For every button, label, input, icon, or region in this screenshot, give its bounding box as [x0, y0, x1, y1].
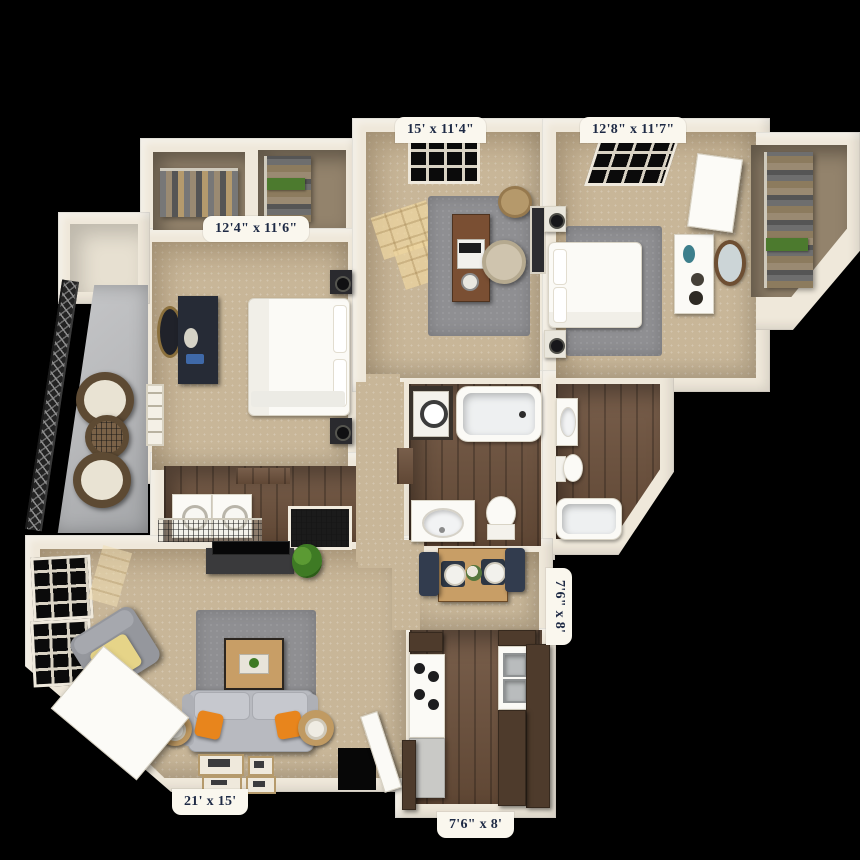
- office-door-opening: [366, 374, 400, 388]
- office-side-table: [498, 186, 532, 218]
- sofa: [182, 688, 318, 754]
- dinner-plate: [484, 562, 506, 584]
- dimension-label-office: 15' x 11'4": [395, 117, 486, 143]
- living-window-1: [30, 554, 93, 621]
- closet-b-green-garment: [267, 178, 305, 190]
- tub-drain: [519, 411, 526, 418]
- bathroom-left-vanity: [411, 500, 475, 542]
- walkin-closet-green-garment: [766, 238, 808, 251]
- dresser-vase-dark: [689, 291, 703, 305]
- stove-burner: [414, 689, 425, 700]
- sink-basin: [503, 679, 527, 703]
- table-lamp: [549, 213, 565, 229]
- bathroom-left-door-opening: [397, 448, 413, 484]
- table-lamp: [335, 276, 351, 292]
- lamp-shade: [305, 718, 327, 740]
- dimension-label-kitchen: 7'6" x 8': [437, 812, 514, 838]
- picture-frame: [246, 776, 276, 794]
- floor-lamp-right: [298, 710, 334, 746]
- laundry-nook: [409, 386, 453, 440]
- sink-basin: [560, 407, 576, 437]
- bedroom-right-bed: [548, 242, 642, 328]
- storage-room-floor: [70, 224, 138, 292]
- coffee-table: [224, 638, 284, 690]
- desk-clock: [461, 273, 479, 291]
- dining-table: [438, 548, 508, 602]
- potted-plant: [292, 544, 322, 578]
- sink-basin: [422, 508, 464, 538]
- bed-pillow: [553, 249, 567, 285]
- coffee-table-plant: [249, 658, 259, 668]
- washer-door: [420, 400, 448, 428]
- bed-pillow: [333, 305, 347, 353]
- stove-burner: [414, 663, 425, 674]
- tv-screen: [212, 541, 290, 555]
- bathroom-right-vanity: [556, 398, 578, 446]
- kitchen-base-cabinet-left: [402, 740, 416, 810]
- passage-dining-left: [392, 560, 420, 630]
- sink-faucet: [439, 527, 445, 533]
- walkin-closet-hanging-clothes: [764, 152, 813, 288]
- stove-burner: [428, 699, 439, 710]
- kitchen-tall-cabinet-right: [526, 644, 550, 808]
- wire-shelf: [158, 518, 262, 542]
- dimension-label-bedroom-right: 12'8" x 11'7": [580, 117, 686, 143]
- bed-pillow: [553, 287, 567, 323]
- dimension-label-bedroom-left: 12'4" x 11'6": [203, 216, 309, 242]
- balcony-chair-2: [73, 452, 131, 508]
- laptop-screen: [459, 243, 481, 253]
- bathtub-right: [556, 498, 622, 540]
- bedroom-left-dresser: [178, 296, 218, 384]
- throw-pillow-left: [194, 710, 225, 741]
- floor-plan-3d: 15' x 11'4" 12'8" x 11'7" 12'4" x 11'6" …: [0, 0, 860, 860]
- bedroom-left-window: [146, 384, 164, 446]
- toilet-bowl: [563, 454, 583, 482]
- toilet-tank: [487, 524, 515, 540]
- dining-chair-right: [505, 548, 525, 592]
- office-chair: [482, 240, 526, 284]
- dresser-vase-teal: [683, 245, 695, 263]
- dining-chair-left: [419, 552, 439, 596]
- kitchen-upper-cabinet-left: [409, 632, 443, 652]
- closet-a-hanging-clothes: [160, 168, 238, 217]
- centerpiece: [466, 565, 482, 581]
- side-doorway: [338, 748, 376, 790]
- table-lamp: [549, 338, 565, 354]
- bedroom-right-nightstand-top: [544, 206, 566, 232]
- dimension-label-living: 21' x 15': [172, 789, 248, 815]
- bedroom-right-dresser: [674, 234, 714, 314]
- picture-frame: [248, 756, 274, 776]
- bedroom-right-nightstand-bottom: [544, 330, 566, 358]
- stove-burner: [428, 671, 439, 682]
- dresser-decor: [184, 328, 198, 348]
- bathtub-left: [456, 386, 542, 442]
- bedroom-left-nightstand-top: [330, 270, 352, 294]
- dresser-vase-dark: [691, 273, 704, 286]
- picture-frame: [198, 754, 244, 776]
- dimension-label-dining: 7'6" x 8': [546, 568, 572, 645]
- bedroom-left-nightstand-bottom: [330, 418, 352, 444]
- tub-basin: [562, 504, 616, 534]
- table-lamp: [335, 425, 351, 441]
- kitchen-base-cabinet-right: [498, 710, 526, 806]
- dinner-plate: [444, 564, 466, 586]
- dresser-tray: [186, 354, 204, 364]
- sink-basin: [503, 653, 527, 677]
- bedroom-left-bed: [248, 298, 350, 416]
- bedroom-left-door-opening: [236, 468, 290, 484]
- kitchen-stove: [409, 654, 445, 738]
- bedroom-right-mirror: [714, 240, 746, 286]
- pass-through-opening: [288, 506, 352, 550]
- bed-folded-blanket: [251, 391, 345, 407]
